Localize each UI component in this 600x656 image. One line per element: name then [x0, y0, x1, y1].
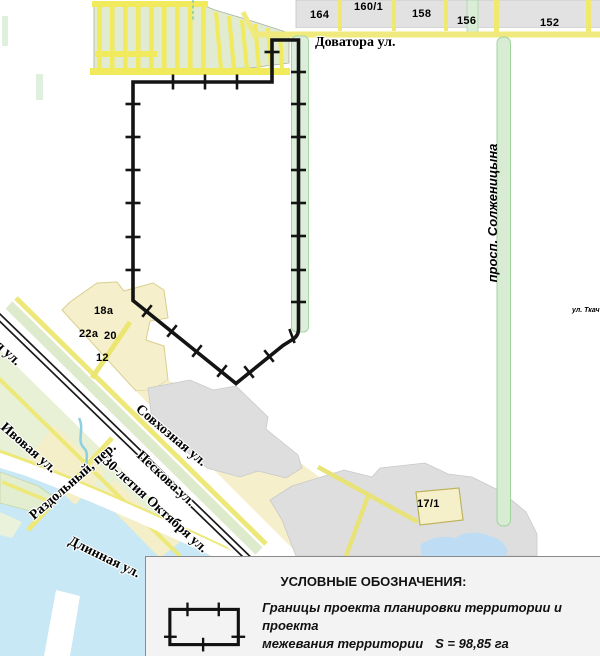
parcel-label-156: 156	[457, 15, 476, 27]
legend-item-line2: межевания территории	[262, 636, 423, 651]
legend-area-value: S = 98,85 га	[435, 636, 509, 651]
gray-blocks	[148, 380, 537, 556]
parcel-label-160-1: 160/1	[354, 1, 383, 13]
parcel-label-18a: 18а	[94, 305, 113, 317]
street-label-tkacheva: ул. Ткач	[572, 307, 600, 314]
parcel-label-164: 164	[310, 9, 329, 21]
legend-item-line1: Границы проекта планировки территории и …	[262, 599, 600, 635]
parcel-label-22a: 22а	[79, 328, 98, 340]
legend-title: УСЛОВНЫЕ ОБОЗНАЧЕНИЯ:	[146, 574, 600, 589]
boundary-symbol	[164, 599, 248, 655]
street-label-dovatora: Доватора ул.	[315, 35, 395, 51]
legend-box: УСЛОВНЫЕ ОБОЗНАЧЕНИЯ: Границы проекта пл…	[145, 556, 600, 656]
parcel-label-152: 152	[540, 17, 559, 29]
parcel-label-17-1: 17/1	[417, 498, 440, 510]
parcel-label-158: 158	[412, 8, 431, 20]
legend-item: Границы проекта планировки территории и …	[262, 599, 600, 653]
street-label-solzhenitsyn: просп. Солженицына	[485, 133, 503, 293]
green-strips	[292, 36, 511, 526]
parcel-label-12: 12	[96, 352, 109, 364]
planning-map: Доватора ул. просп. Солженицына ул. Ткач…	[0, 0, 600, 656]
parcel-label-20: 20	[104, 330, 117, 342]
project-boundary	[126, 40, 307, 384]
boundary-ticks	[126, 52, 307, 378]
